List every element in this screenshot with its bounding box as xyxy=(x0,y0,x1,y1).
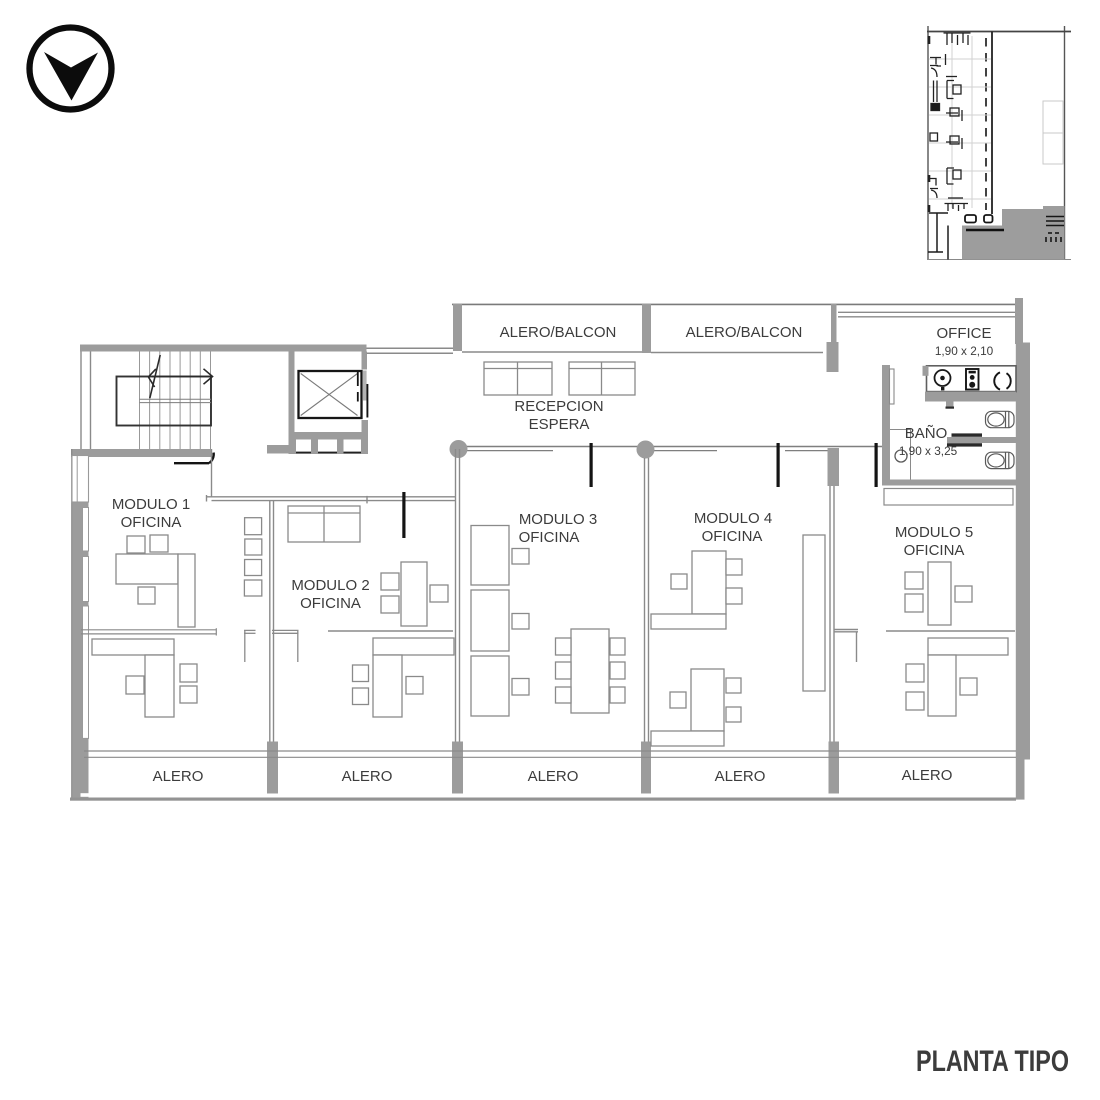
svg-text:PLANTA TIPO: PLANTA TIPO xyxy=(916,1045,1069,1078)
svg-text:ALERO: ALERO xyxy=(902,767,953,784)
svg-text:OFICINA: OFICINA xyxy=(519,529,580,546)
svg-text:ALERO/BALCON: ALERO/BALCON xyxy=(686,324,803,341)
svg-text:RECEPCION: RECEPCION xyxy=(514,398,603,415)
svg-text:MODULO 4: MODULO 4 xyxy=(694,510,772,527)
svg-text:ALERO: ALERO xyxy=(528,768,579,785)
svg-text:MODULO 3: MODULO 3 xyxy=(519,511,597,528)
svg-text:OFICINA: OFICINA xyxy=(702,528,763,545)
svg-text:ALERO: ALERO xyxy=(153,768,204,785)
svg-text:OFICINA: OFICINA xyxy=(121,514,182,531)
svg-text:ALERO/BALCON: ALERO/BALCON xyxy=(500,324,617,341)
svg-text:1,90 x 3,25: 1,90 x 3,25 xyxy=(899,444,958,458)
svg-text:MODULO 1: MODULO 1 xyxy=(112,496,190,513)
svg-text:ESPERA: ESPERA xyxy=(529,416,590,433)
svg-text:BAÑO: BAÑO xyxy=(905,425,948,442)
svg-text:OFFICE: OFFICE xyxy=(937,325,992,342)
svg-text:OFICINA: OFICINA xyxy=(300,595,361,612)
svg-text:1,90 x 2,10: 1,90 x 2,10 xyxy=(935,344,994,358)
svg-text:MODULO 2: MODULO 2 xyxy=(291,577,369,594)
svg-text:MODULO 5: MODULO 5 xyxy=(895,524,973,541)
svg-text:ALERO: ALERO xyxy=(715,768,766,785)
svg-text:ALERO: ALERO xyxy=(342,768,393,785)
svg-text:OFICINA: OFICINA xyxy=(904,542,965,559)
